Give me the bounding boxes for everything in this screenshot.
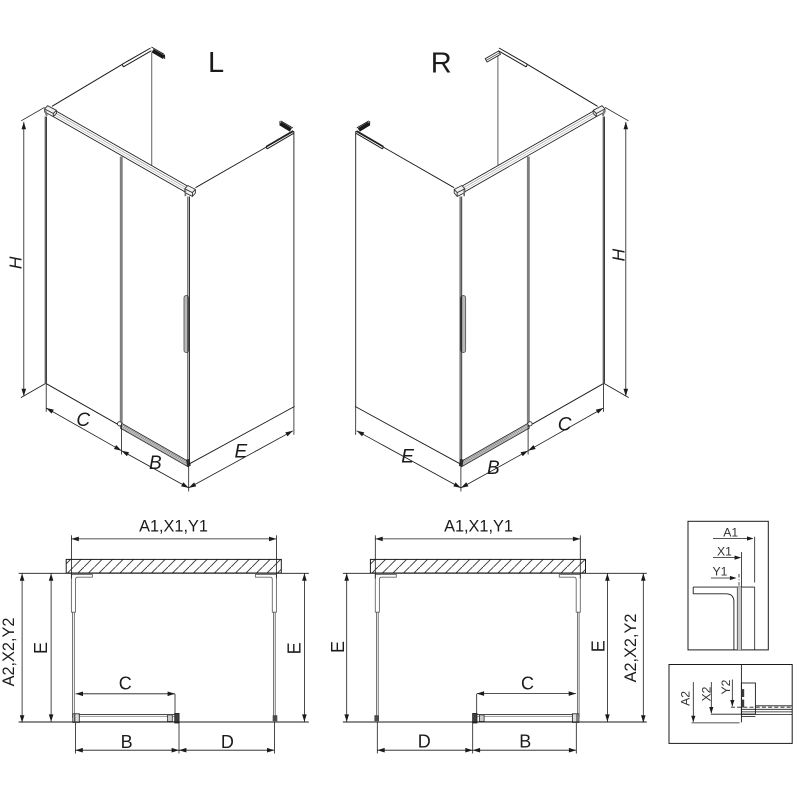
svg-text:A2,X2,Y2: A2,X2,Y2 (0, 618, 18, 687)
svg-text:D: D (221, 732, 234, 752)
svg-text:H: H (6, 256, 26, 269)
svg-text:A1,X1,Y1: A1,X1,Y1 (444, 518, 513, 536)
svg-text:A2,X2,Y2: A2,X2,Y2 (622, 614, 640, 683)
svg-text:B: B (149, 453, 162, 474)
svg-text:B: B (519, 732, 531, 752)
svg-text:A1,X1,Y1: A1,X1,Y1 (139, 518, 208, 536)
svg-text:E: E (328, 641, 348, 653)
svg-text:Y2: Y2 (719, 679, 733, 694)
svg-text:C: C (521, 674, 534, 694)
svg-text:E: E (401, 446, 414, 467)
svg-text:E: E (285, 642, 305, 654)
svg-text:A1: A1 (723, 526, 738, 540)
svg-text:C: C (119, 674, 132, 694)
svg-text:L: L (208, 47, 224, 79)
svg-text:X1: X1 (717, 544, 732, 558)
svg-text:X2: X2 (700, 686, 714, 701)
svg-text:E: E (31, 642, 51, 654)
svg-text:B: B (487, 458, 500, 479)
svg-text:A2: A2 (679, 691, 693, 706)
svg-text:C: C (76, 410, 90, 431)
svg-text:C: C (558, 414, 572, 435)
svg-text:E: E (588, 640, 608, 652)
svg-text:E: E (234, 442, 247, 463)
svg-text:B: B (121, 732, 133, 752)
svg-text:Y1: Y1 (712, 564, 727, 578)
svg-text:D: D (418, 732, 431, 752)
svg-text:R: R (431, 48, 452, 80)
svg-text:H: H (608, 248, 628, 261)
